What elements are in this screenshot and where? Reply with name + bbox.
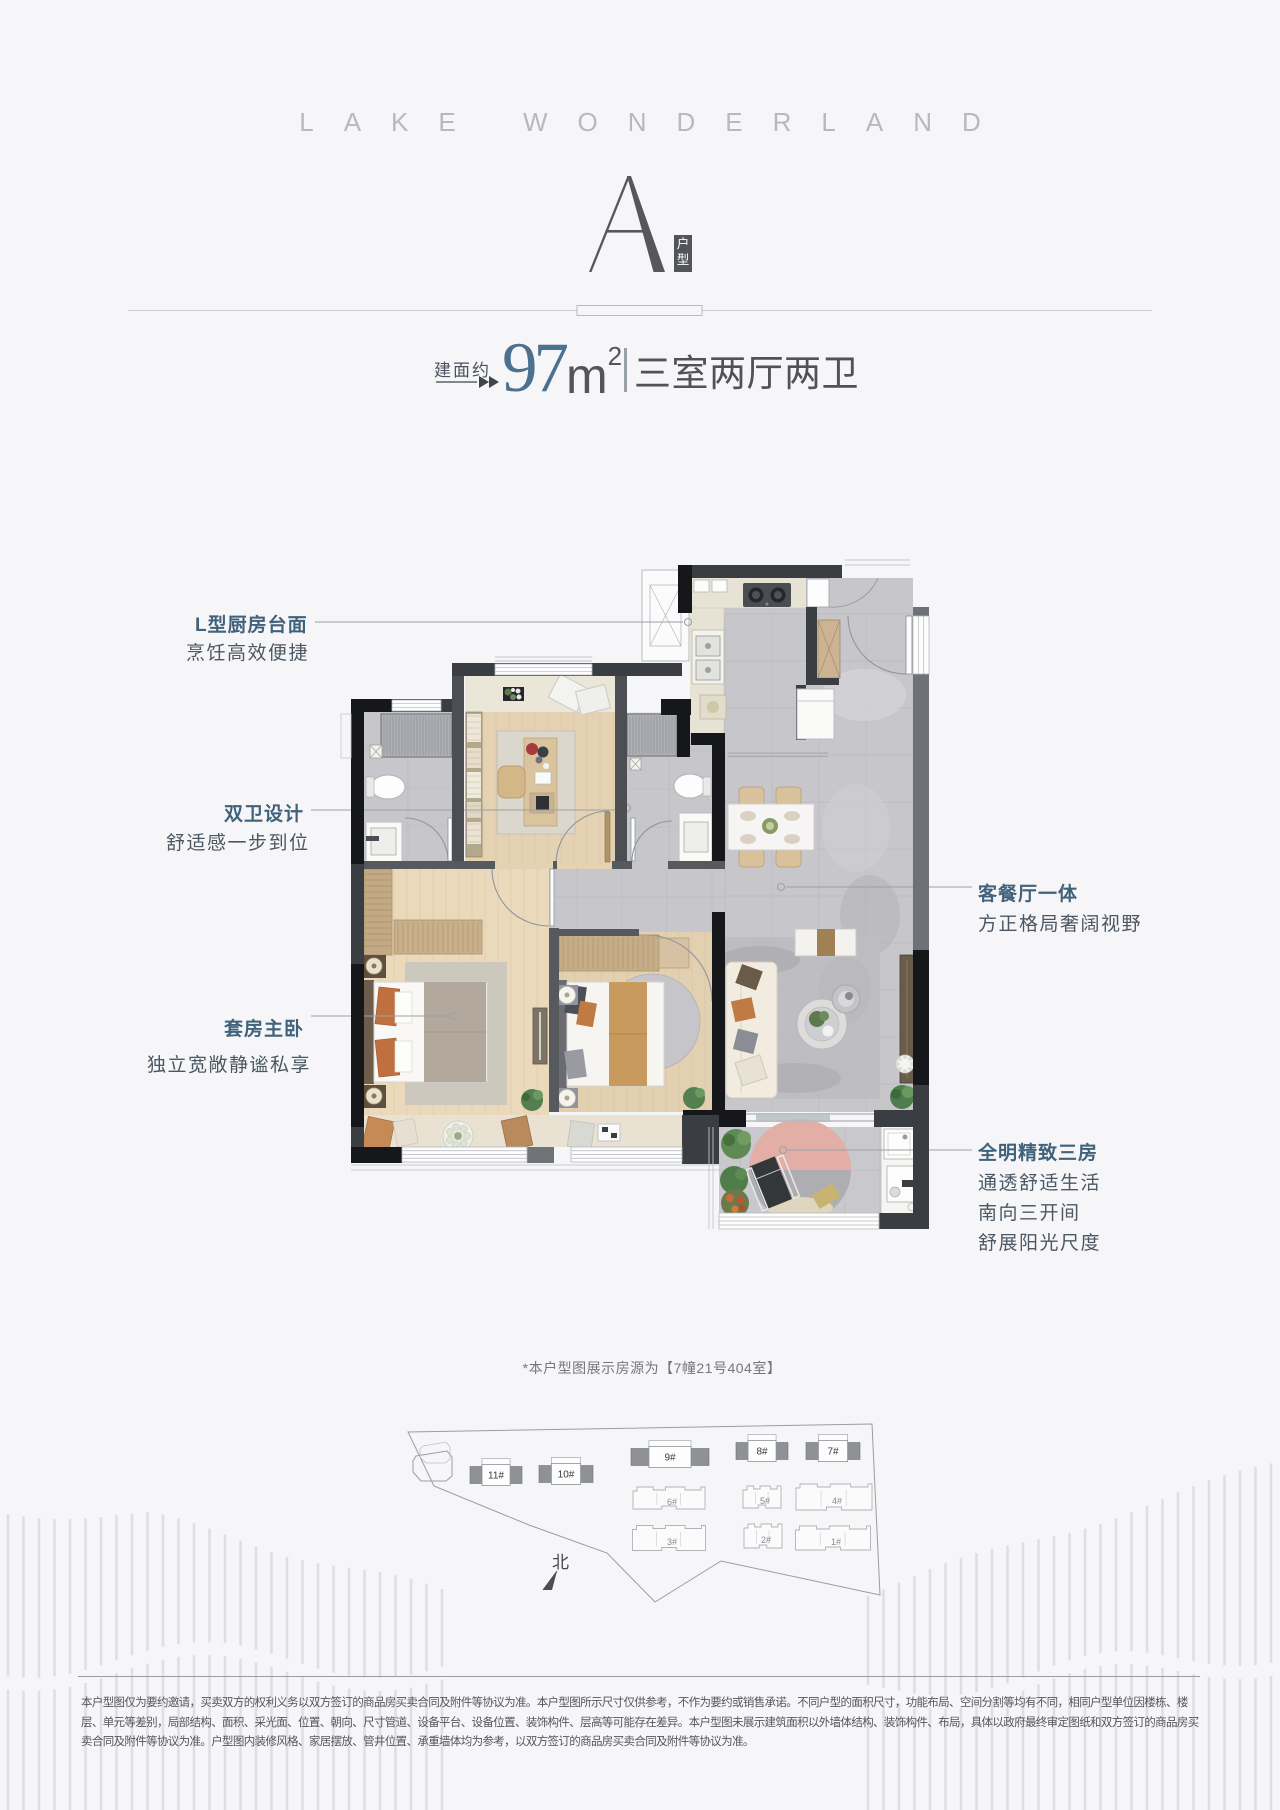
svg-text:北: 北 [552, 1553, 569, 1572]
svg-text:6#: 6# [667, 1497, 677, 1507]
svg-text:3#: 3# [667, 1537, 677, 1547]
svg-text:4#: 4# [832, 1496, 842, 1506]
svg-text:9#: 9# [664, 1453, 676, 1464]
svg-text:10#: 10# [558, 1470, 575, 1481]
svg-text:7#: 7# [827, 1447, 839, 1458]
svg-text:1#: 1# [831, 1537, 841, 1547]
svg-text:型: 型 [677, 253, 690, 267]
svg-text:5#: 5# [760, 1496, 770, 1506]
svg-text:11#: 11# [488, 1471, 504, 1482]
svg-text:8#: 8# [756, 1447, 768, 1458]
svg-text:户: 户 [677, 236, 690, 251]
svg-text:2#: 2# [761, 1535, 771, 1545]
